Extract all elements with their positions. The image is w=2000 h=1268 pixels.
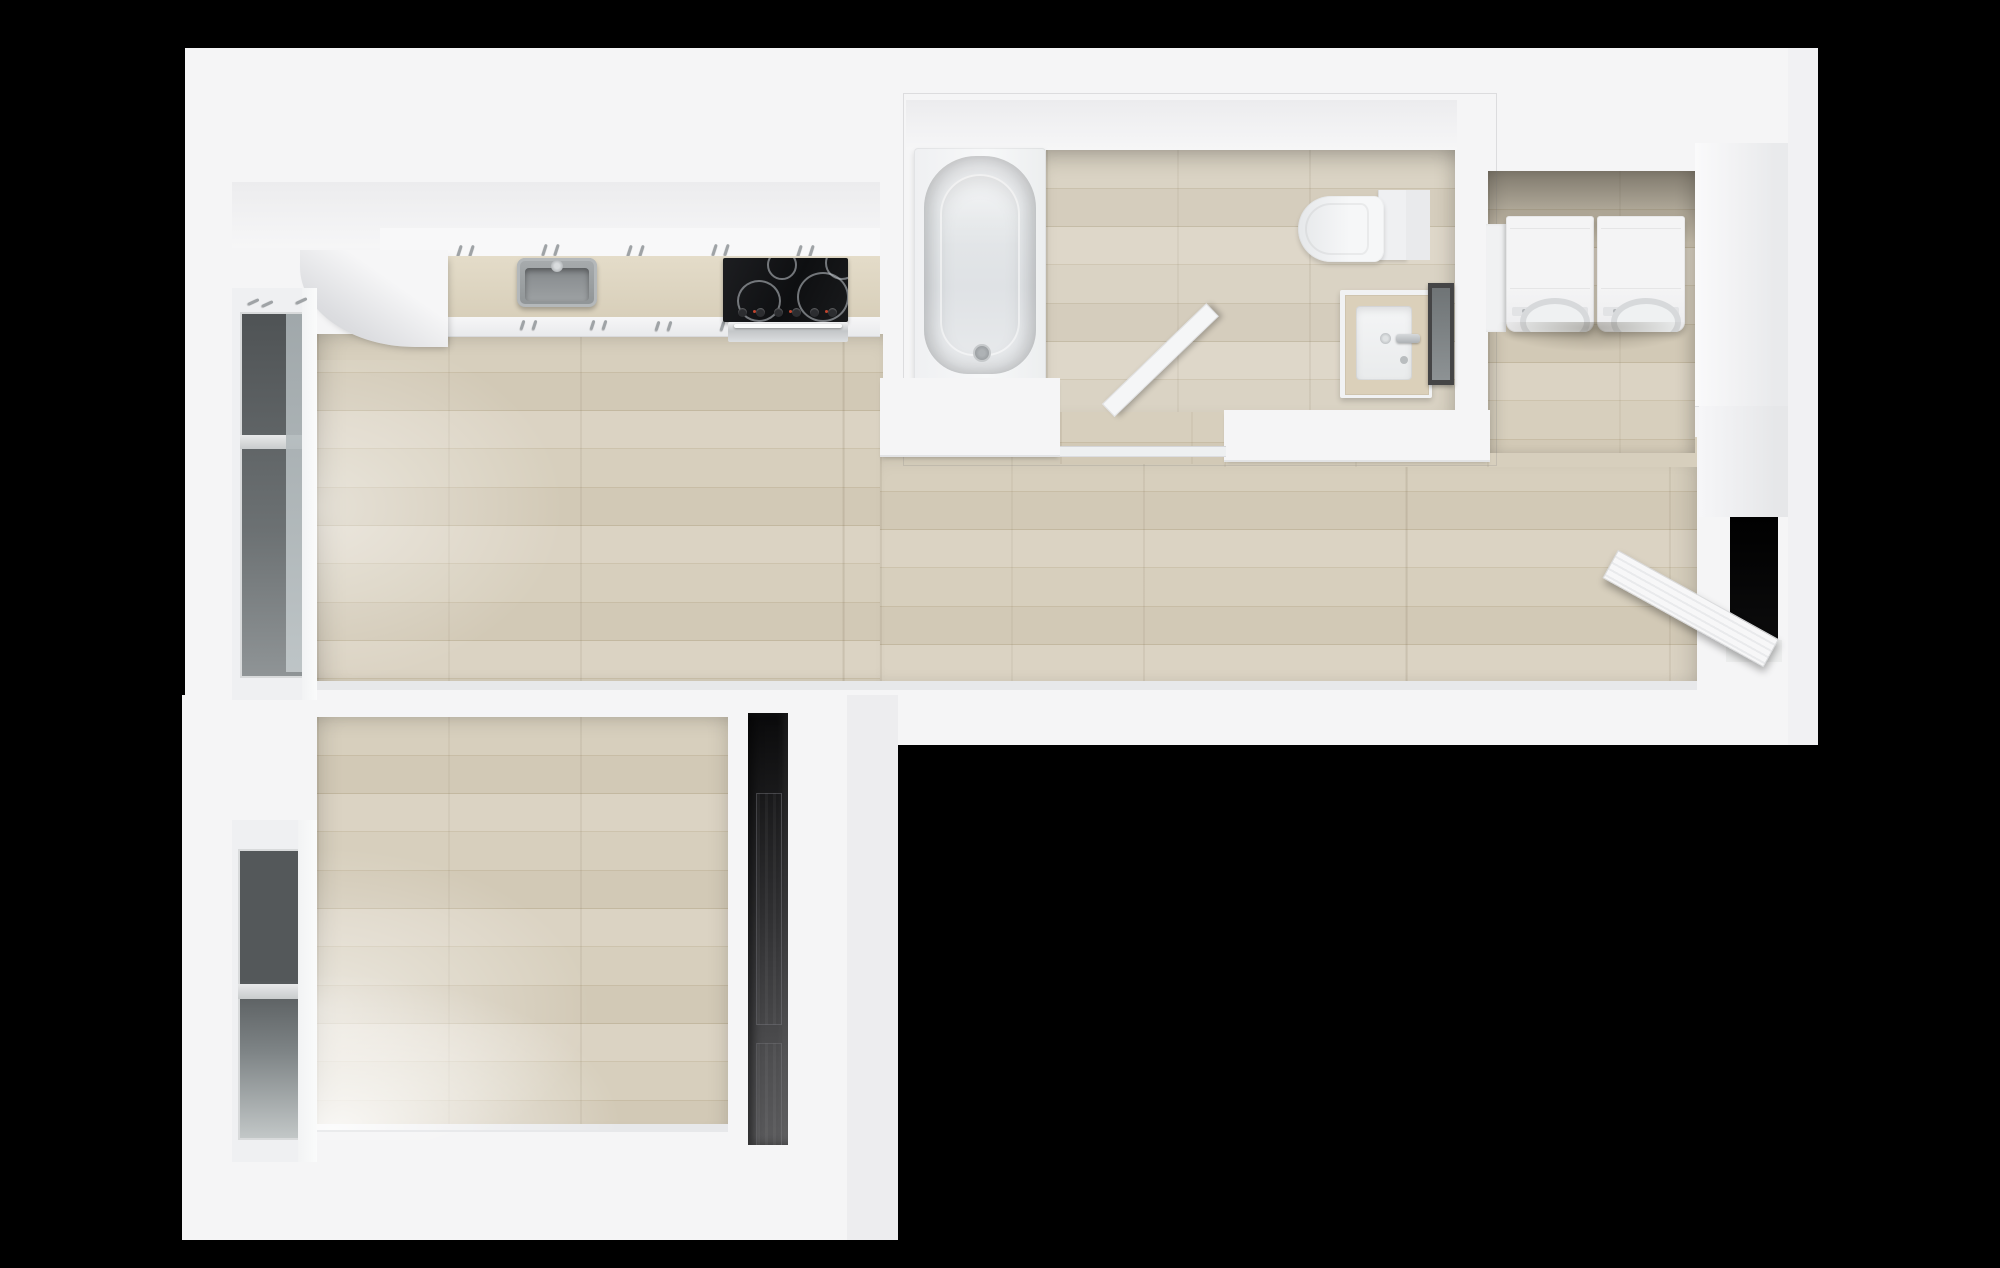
kitchen-cooktop (723, 258, 848, 322)
window-sill (302, 288, 317, 700)
bathtub-inner-contour (940, 174, 1020, 356)
main-wing-right-face (1788, 48, 1818, 745)
bedroom-floor (317, 717, 728, 1130)
living-kitchen-floor (317, 334, 883, 686)
stove-knob-icon (756, 308, 765, 317)
vanity-drain-icon (1400, 356, 1408, 364)
wardrobe-panel (756, 1043, 782, 1145)
stove-knob-icon (792, 308, 801, 317)
toilet-seat-line (1305, 203, 1369, 255)
entry-wall-column-upper (1695, 143, 1788, 407)
dryer (1597, 216, 1685, 332)
bottom-wing-east-face (847, 695, 898, 1240)
stove-knob-icon (828, 308, 837, 317)
closet-wardrobe (748, 713, 788, 1145)
bathroom-door-track (1060, 446, 1226, 457)
bathroom-north-wall-face (906, 100, 1457, 150)
stove-knob-icon (774, 308, 783, 317)
stove-indicator-icon (753, 310, 756, 313)
stove-indicator-icon (825, 310, 828, 313)
washer-door-icon (1520, 298, 1590, 332)
mirror-glass (1432, 288, 1450, 380)
bathroom-mirror (1428, 283, 1454, 385)
bedroom-window (232, 820, 317, 1162)
kitchen-oven-front (728, 322, 848, 342)
window-mullion (238, 984, 302, 999)
window-inner-pane (286, 314, 302, 672)
stove-knob-icon (810, 308, 819, 317)
bedroom-south-baseboard (317, 1124, 728, 1132)
living-center-floor (880, 453, 1697, 686)
window-sill (298, 820, 317, 1162)
entry-wall-column-lower (1699, 406, 1788, 517)
main-south-baseboard (317, 681, 1697, 690)
wardrobe-panel (756, 793, 782, 1025)
sink-basin (525, 268, 589, 301)
stove-knob-icon (738, 308, 747, 317)
kitchen-upper-cabinets (380, 228, 880, 259)
burner-icon (767, 258, 797, 280)
bathtub-drain-icon (973, 344, 991, 362)
stove-indicator-icon (789, 310, 792, 313)
dryer-door-icon (1611, 298, 1681, 332)
bathtub (914, 148, 1046, 385)
vanity-knob-icon (1380, 333, 1391, 344)
bathroom-southeast-wall (1224, 410, 1490, 462)
scene-background (0, 0, 2000, 1268)
kitchen-sink (517, 258, 597, 307)
laundry-pedestal (1486, 224, 1506, 332)
washer (1506, 216, 1594, 332)
living-window (232, 288, 317, 700)
vanity-faucet-icon (1396, 334, 1420, 343)
bathroom-vanity (1340, 290, 1432, 398)
bathroom-southwest-wall (880, 378, 1060, 457)
oven-handle-icon (734, 324, 842, 328)
toilet-ledge (1406, 190, 1430, 260)
toilet-bowl (1298, 196, 1384, 262)
sink-faucet-icon (551, 260, 563, 272)
